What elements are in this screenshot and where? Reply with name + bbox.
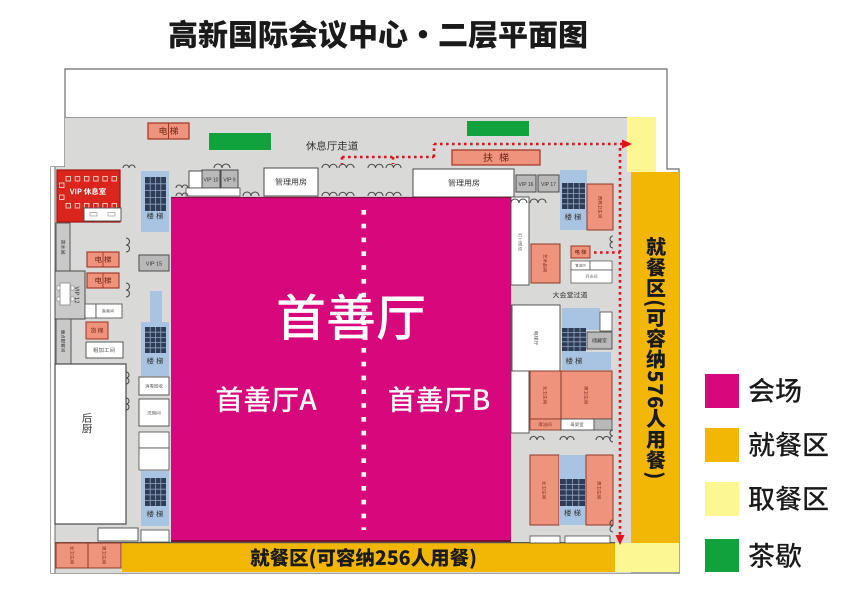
svg-text:VIP 9: VIP 9	[223, 178, 235, 184]
svg-text:VIP 15: VIP 15	[146, 262, 162, 268]
svg-text:VIP 16: VIP 16	[519, 182, 534, 188]
svg-text:VIP 17: VIP 17	[541, 182, 556, 188]
svg-text:VIP 10: VIP 10	[204, 178, 219, 184]
